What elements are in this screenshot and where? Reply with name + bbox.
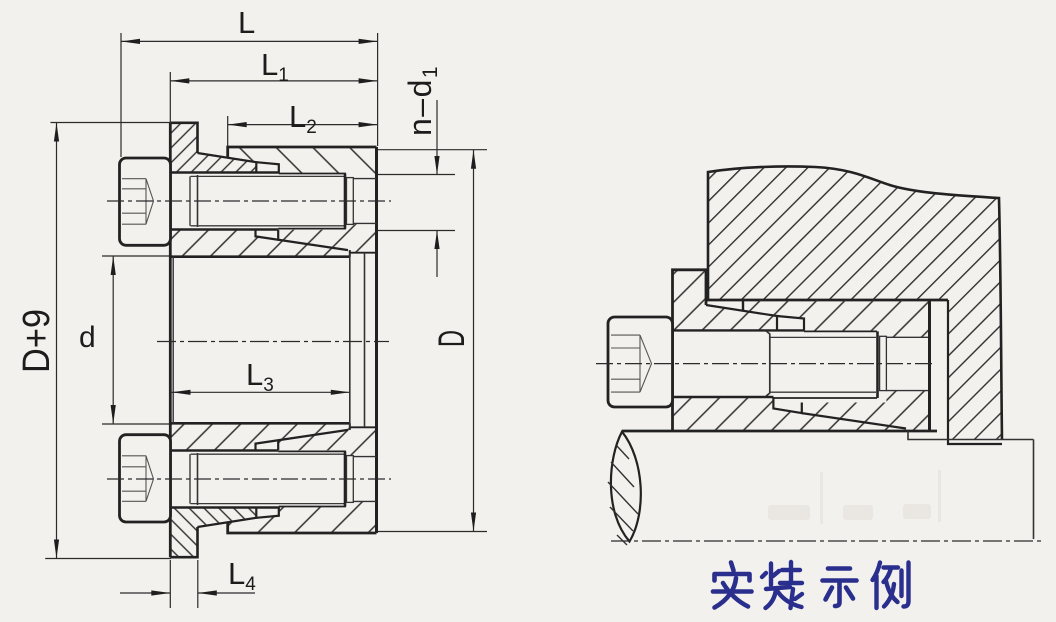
svg-text:L: L bbox=[238, 5, 255, 40]
svg-text:D+9: D+9 bbox=[16, 309, 58, 373]
svg-text:D: D bbox=[431, 330, 472, 347]
svg-text:d: d bbox=[79, 321, 96, 354]
